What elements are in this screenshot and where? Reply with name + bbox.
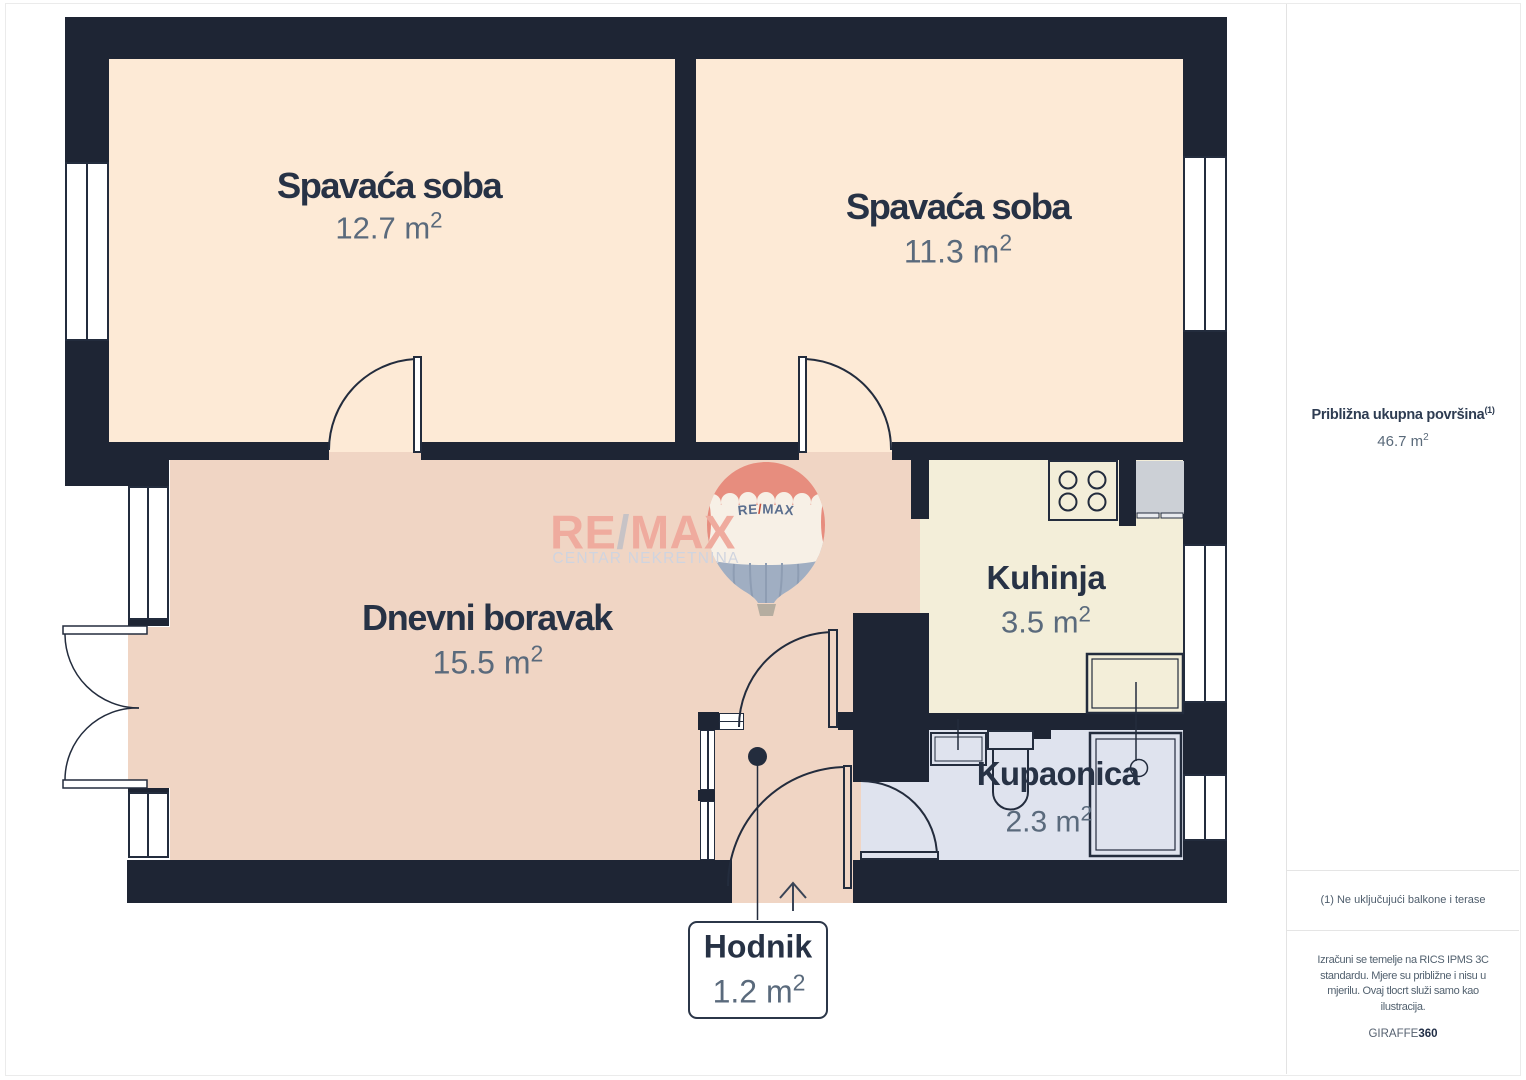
svg-text:RE/MAX: RE/MAX: [737, 501, 795, 518]
